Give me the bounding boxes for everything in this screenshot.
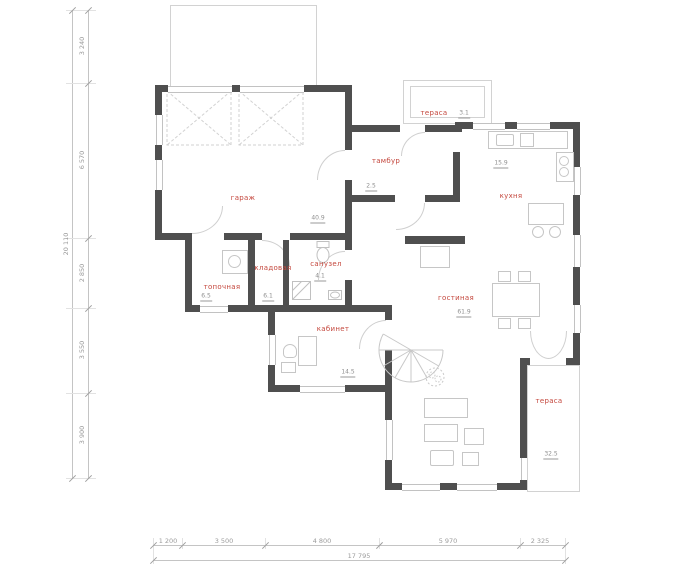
dimension-line-bottom-outer: [153, 560, 565, 561]
room-label-boiler: топочная: [204, 283, 241, 291]
wall: [248, 240, 255, 305]
room-label-office: кабинет: [317, 325, 349, 333]
wall: [440, 483, 457, 490]
wall: [155, 145, 162, 160]
kitchen-island: [528, 203, 564, 225]
wall: [228, 305, 392, 312]
room-label-terrace-top: тераса: [420, 109, 447, 117]
window: [457, 484, 497, 491]
room-label-vestibule: тамбур: [372, 157, 400, 165]
dimension-value: 5 970: [439, 537, 458, 545]
dining-chair: [498, 318, 511, 329]
room-area-storage: 6.1: [262, 293, 274, 302]
cabinet: [281, 362, 296, 373]
wall: [385, 460, 392, 490]
sink-icon: [328, 290, 342, 300]
wall: [455, 122, 473, 129]
dimension-value: 1 200: [159, 537, 178, 545]
dimension-value: 3 500: [215, 537, 234, 545]
room-area-garage: 40.9: [310, 215, 325, 224]
wall: [345, 85, 352, 150]
window: [200, 306, 228, 313]
wall: [345, 240, 352, 250]
canopy-outline: [170, 5, 317, 87]
wall: [185, 240, 192, 312]
dimension-line-left-outer: [72, 10, 73, 478]
terrace-outline: [527, 365, 580, 492]
wall: [345, 195, 395, 202]
desk: [298, 336, 317, 366]
room-area-bathroom: 4.1: [314, 273, 326, 282]
french-door-arc: [530, 331, 549, 359]
wall: [566, 358, 580, 365]
extension-line: [66, 83, 96, 84]
room-label-garage: гараж: [231, 194, 256, 202]
door-arc: [401, 132, 425, 156]
plant-icon: [424, 366, 446, 388]
side-table: [462, 452, 479, 466]
dimension-total: 20 110: [62, 233, 70, 256]
wall: [345, 180, 352, 240]
dimension-line-left-inner: [88, 10, 89, 478]
window: [574, 167, 581, 195]
hob-burner-icon: [559, 167, 569, 177]
window: [473, 123, 505, 130]
window: [156, 115, 163, 145]
floor-plan-canvas: гараж 40.9 тамбур 2.5 тераса 3.1 кухня 1…: [0, 0, 700, 575]
dimension-line-bottom-inner: [153, 545, 565, 546]
wall: [520, 365, 527, 458]
garage-door: [240, 86, 304, 93]
garage-door: [168, 86, 232, 93]
dimension-value: 6 570: [78, 151, 86, 170]
garage-door-panel-icon: [166, 90, 232, 146]
dimension-total: 17 795: [348, 552, 371, 560]
wall: [497, 483, 527, 490]
coffee-table: [464, 428, 484, 445]
extension-line: [66, 308, 96, 309]
window: [300, 386, 345, 393]
door-arc: [317, 150, 345, 180]
dimension-value: 2 325: [531, 537, 550, 545]
room-area-boiler: 6.5: [200, 293, 212, 302]
dining-chair: [518, 271, 531, 282]
extension-line: [66, 393, 96, 394]
window: [574, 305, 581, 333]
window: [156, 160, 163, 190]
wall: [268, 385, 300, 392]
dining-table: [492, 283, 540, 317]
door-arc: [192, 206, 223, 234]
window: [517, 123, 550, 130]
wall: [453, 152, 460, 202]
kitchen-appliance: [520, 133, 534, 147]
wall: [385, 392, 392, 420]
wall: [283, 240, 289, 305]
wall: [290, 233, 352, 240]
wall: [185, 305, 200, 312]
sofa: [424, 424, 458, 442]
kitchen-sink: [496, 134, 514, 146]
bar-stool: [532, 226, 544, 238]
wall: [155, 233, 192, 240]
wall: [345, 125, 400, 132]
wall: [268, 312, 275, 335]
french-door-arc: [548, 331, 567, 359]
armchair: [430, 450, 454, 466]
dimension-value: 3 240: [78, 37, 86, 56]
room-label-bathroom: санузел: [310, 260, 341, 268]
fireplace-hearth: [420, 246, 450, 268]
door-arc: [396, 203, 425, 230]
extension-line: [66, 238, 96, 239]
room-label-terrace-bottom: тераса: [535, 397, 562, 405]
office-chair: [283, 344, 297, 358]
room-label-kitchen: кухня: [500, 192, 523, 200]
wall: [573, 195, 580, 235]
room-area-terrace-bottom: 32.5: [543, 451, 558, 460]
room-area-terrace-top: 3.1: [458, 110, 470, 119]
wall: [505, 122, 517, 129]
room-area-office: 14.5: [340, 369, 355, 378]
room-area-living: 61.9: [456, 309, 471, 318]
wall: [573, 267, 580, 305]
dining-chair: [498, 271, 511, 282]
wall: [224, 233, 262, 240]
wall: [385, 305, 392, 320]
room-label-living: гостиная: [438, 294, 474, 302]
hob-burner-icon: [559, 156, 569, 166]
bar-stool: [549, 226, 561, 238]
sofa: [424, 398, 468, 418]
wall: [573, 122, 580, 167]
dimension-value: 3 550: [78, 341, 86, 360]
garage-door-panel-icon: [238, 90, 304, 146]
window: [402, 484, 440, 491]
washer-drum-icon: [228, 255, 241, 268]
room-label-storage: кладовая: [254, 264, 291, 272]
room-area-kitchen: 15.9: [493, 160, 508, 169]
dimension-value: 2 850: [78, 264, 86, 283]
window: [386, 420, 393, 460]
dimension-value: 4 800: [313, 537, 332, 545]
room-area-vestibule: 2.5: [365, 183, 377, 192]
window: [574, 235, 581, 267]
dining-chair: [518, 318, 531, 329]
fireplace: [405, 236, 465, 244]
window: [269, 335, 276, 365]
wall: [232, 85, 240, 92]
shower-icon: [292, 281, 311, 300]
dimension-value: 3 900: [78, 426, 86, 445]
wall: [520, 358, 530, 365]
wall: [155, 85, 162, 115]
